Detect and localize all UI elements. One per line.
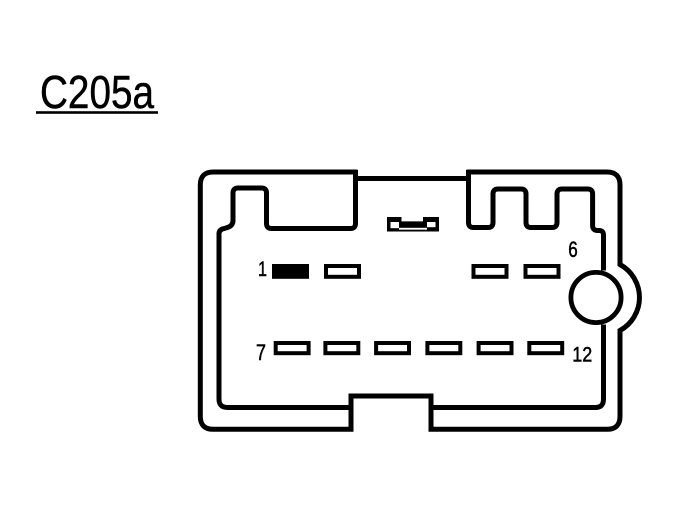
svg-text:1: 1	[258, 258, 267, 281]
svg-text:7: 7	[256, 340, 266, 365]
svg-text:6: 6	[568, 237, 578, 262]
svg-text:12: 12	[572, 343, 592, 366]
svg-text:C205a: C205a	[40, 66, 154, 118]
